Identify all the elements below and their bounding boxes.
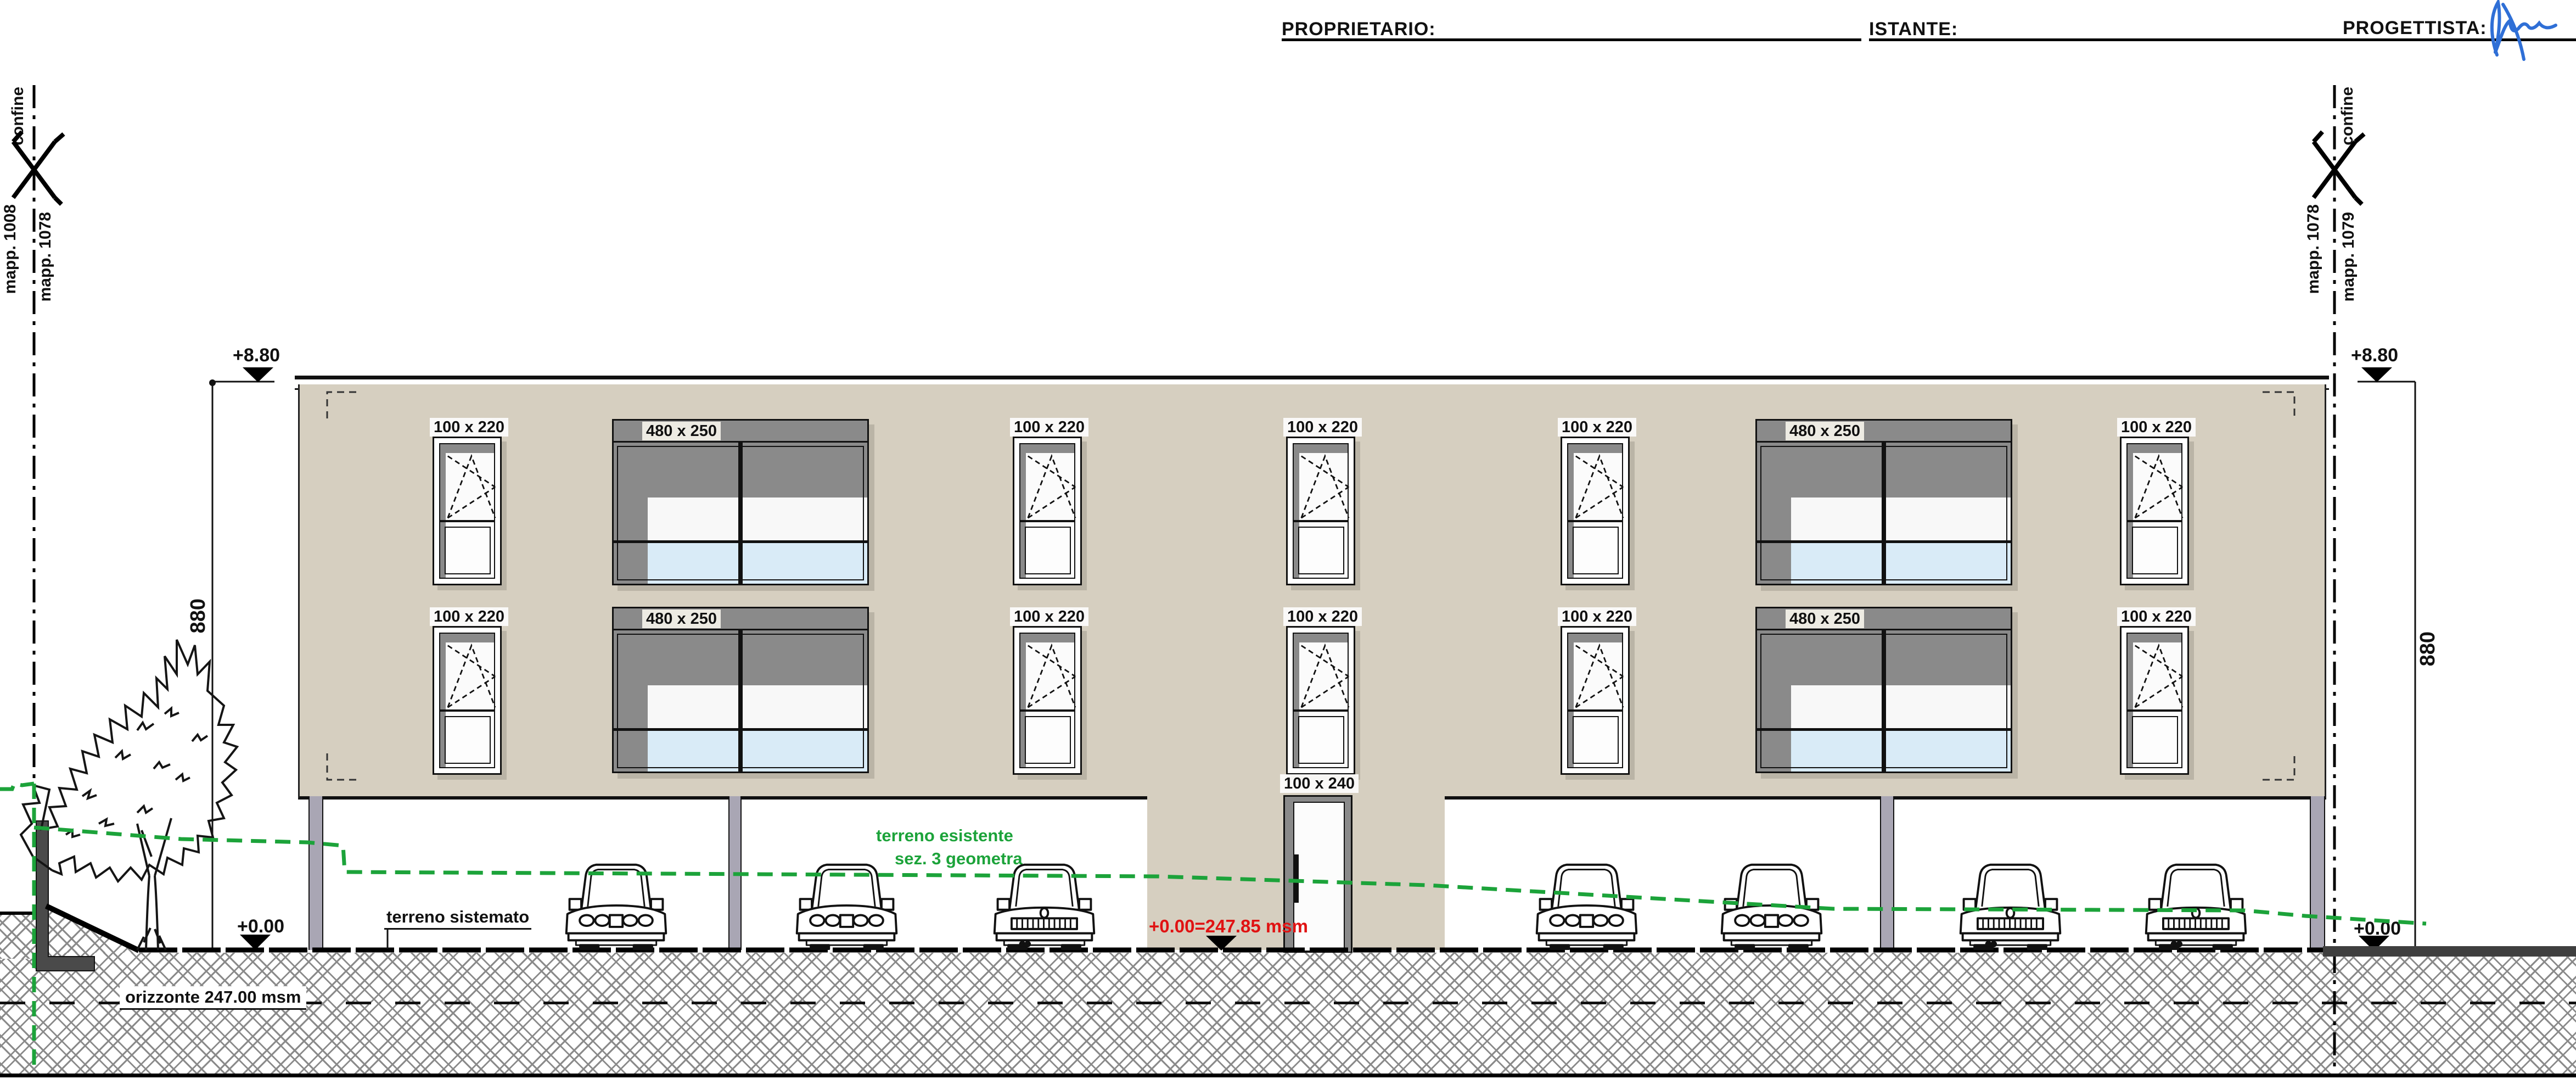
car-rear-icon [1961, 865, 2061, 949]
mapp-right-b-label: mapp. 1079 [2339, 212, 2358, 301]
window-size-label: 480 x 250 [1786, 610, 1864, 628]
window-size-label: 100 x 220 [1558, 607, 1636, 626]
mapp-left-b-label: mapp. 1078 [36, 212, 55, 301]
signature-icon [2492, 2, 2556, 59]
window-size-label: 100 x 220 [1010, 607, 1088, 626]
window-small: 100 x 220 [1561, 626, 1630, 775]
ground-hatch-left [0, 912, 36, 959]
horizon-dashed-line [0, 1002, 2576, 1004]
header-rule-right [1869, 38, 2576, 41]
window-small: 100 x 220 [1013, 437, 1082, 585]
window-large: 480 x 250 [1755, 607, 2012, 773]
dimension-line-right [2358, 382, 2415, 951]
ground-wall-right-of-door [1349, 796, 1445, 950]
terreno-esistente-label-2: sez. 3 geometra [895, 849, 1023, 869]
ground-hatch [0, 953, 2576, 1077]
car-front-icon [566, 865, 666, 949]
window-size-label: 100 x 220 [430, 607, 508, 626]
elevation-drawing: PROPRIETARIO: ISTANTE: PROGETTISTA: conf… [0, 0, 2576, 1090]
orizzonte-label: orizzonte 247.00 msm [120, 986, 306, 1010]
dimension-880-right: 880 [2416, 631, 2440, 666]
pilaster [728, 796, 742, 950]
window-large: 480 x 250 [612, 607, 869, 773]
window-size-label: 100 x 220 [430, 418, 508, 437]
window-size-label: 100 x 220 [1558, 418, 1636, 437]
label-istante: ISTANTE: [1869, 19, 1958, 40]
level-zero-left: +0.00 [235, 916, 287, 937]
tree-icon [21, 640, 237, 950]
mapp-left-a-label: mapp. 1008 [1, 204, 20, 294]
level-zero-absolute: +0.00=247.85 msm [1149, 916, 1308, 937]
casement-icon [446, 453, 497, 520]
window-size-label: 100 x 220 [2117, 607, 2196, 626]
window-small: 100 x 220 [2120, 437, 2189, 585]
window-size-label: 480 x 250 [642, 422, 721, 440]
window-small: 100 x 220 [1013, 626, 1082, 775]
car-rear-icon [995, 865, 1095, 949]
window-size-label: 100 x 220 [1010, 418, 1088, 437]
window-small: 100 x 220 [1561, 437, 1630, 585]
dimension-dot [2412, 946, 2418, 953]
window-small: 100 x 220 [1286, 626, 1355, 775]
window-small: 100 x 220 [433, 626, 502, 775]
pilaster [2310, 796, 2325, 950]
window-small: 100 x 220 [433, 437, 502, 585]
car-front-icon [797, 865, 897, 949]
ground-hatch-slope [47, 906, 139, 953]
car-front-icon [1722, 865, 1822, 949]
window-small: 100 x 220 [1286, 437, 1355, 585]
mapp-right-a-label: mapp. 1078 [2304, 204, 2323, 294]
window-size-label: 100 x 220 [1283, 418, 1362, 437]
window-size-label: 100 x 220 [2117, 418, 2196, 437]
level-roof-left: +8.80 [233, 345, 280, 366]
dimension-line-left [212, 382, 274, 949]
label-proprietario: PROPRIETARIO: [1282, 19, 1436, 40]
window-small: 100 x 220 [2120, 626, 2189, 775]
header-rule-left [1282, 38, 1861, 41]
pilaster [308, 796, 323, 950]
pilaster [1880, 796, 1894, 950]
window-large: 480 x 250 [612, 419, 869, 585]
confine-right-label: confine [2338, 87, 2357, 146]
dimension-880-left: 880 [187, 599, 210, 633]
level-roof-right: +8.80 [2351, 345, 2398, 366]
label-progettista: PROGETTISTA: [2343, 18, 2487, 39]
terreno-sistemato-label: terreno sistemato [384, 907, 531, 930]
window-large: 480 x 250 [1755, 419, 2012, 585]
car-front-icon [1537, 865, 1637, 949]
confine-left-label: confine [9, 87, 27, 146]
car-rear-icon [2146, 865, 2246, 949]
level-zero-right: +0.00 [2354, 918, 2401, 940]
dimension-dot [209, 379, 216, 386]
door-size-label: 100 x 240 [1280, 774, 1359, 793]
window-size-label: 480 x 250 [1786, 422, 1864, 440]
window-size-label: 480 x 250 [642, 610, 721, 628]
window-size-label: 100 x 220 [1283, 607, 1362, 626]
terreno-esistente-label-1: terreno esistente [876, 826, 1013, 846]
